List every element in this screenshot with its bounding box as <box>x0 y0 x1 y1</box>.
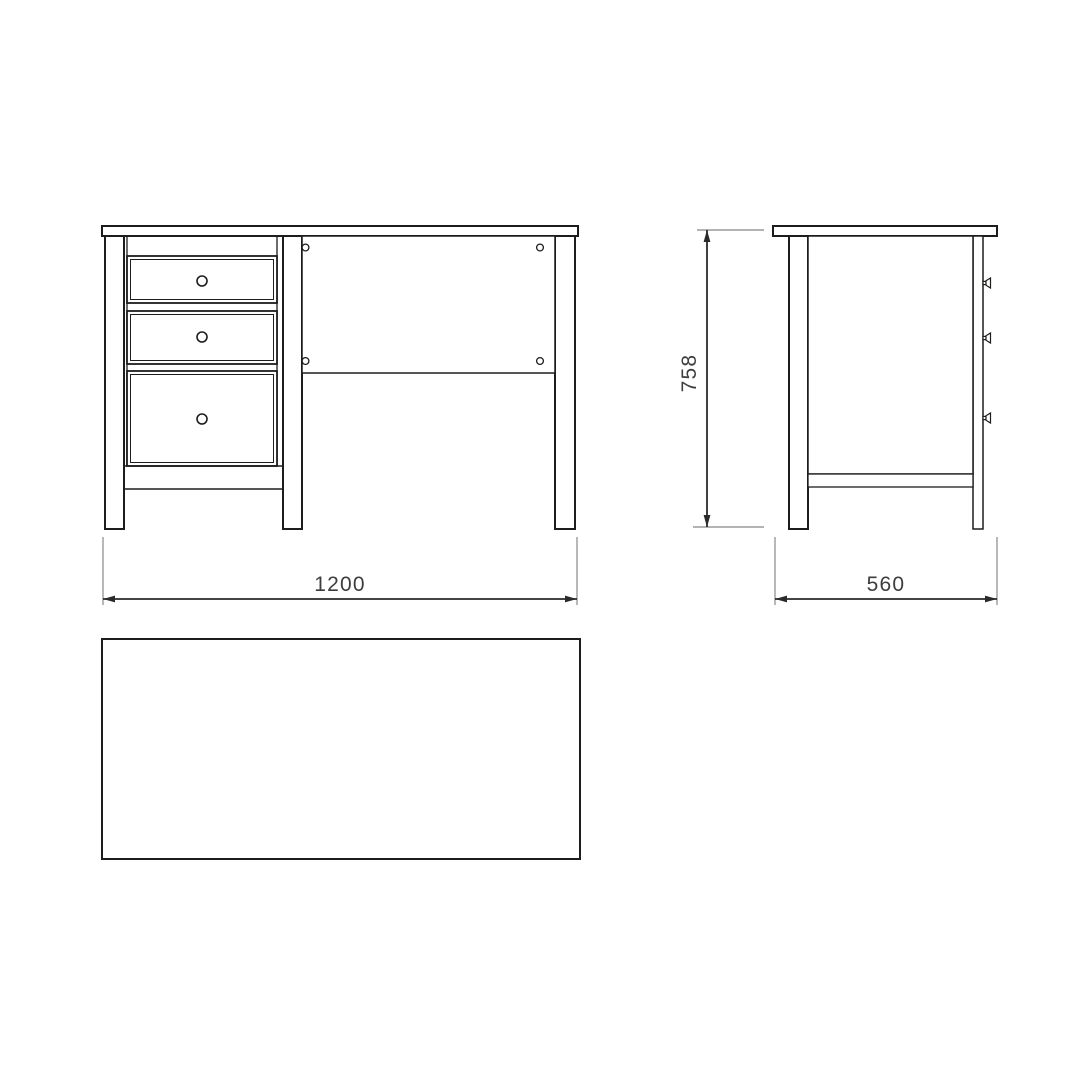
plan-desktop-outline <box>102 639 580 859</box>
arrowhead-down <box>704 515 711 527</box>
screw-hole-icon <box>537 358 544 365</box>
depth-dimension-label: 560 <box>867 573 906 596</box>
width-dimension: 1200 <box>103 537 577 605</box>
width-dimension-label: 1200 <box>314 573 366 596</box>
drawer-knob-icon <box>197 414 207 424</box>
front-bottom-rail <box>124 466 283 489</box>
screw-hole-icon <box>537 244 544 251</box>
technical-drawing-canvas: 1200 560 758 <box>0 0 1080 1080</box>
front-middle-leg <box>283 236 302 529</box>
drawer-knob-icon <box>197 276 207 286</box>
drawer-front-1 <box>127 256 277 303</box>
side-view <box>773 226 997 529</box>
arrowhead-right <box>985 596 997 603</box>
front-top-board <box>102 226 578 236</box>
depth-dimension: 560 <box>775 537 997 605</box>
front-right-leg <box>555 236 575 529</box>
front-view <box>102 226 578 529</box>
height-dimension-label: 758 <box>678 354 701 393</box>
front-left-leg <box>105 236 124 529</box>
plan-view <box>102 639 580 859</box>
screw-hole-icon <box>302 244 309 251</box>
side-front-leg <box>973 236 983 529</box>
arrowhead-left <box>775 596 787 603</box>
arrowhead-up <box>704 230 711 242</box>
drawer-knob-icon <box>197 332 207 342</box>
side-knob-icon <box>983 278 991 288</box>
side-back-leg <box>789 236 808 529</box>
side-top-board <box>773 226 997 236</box>
screw-hole-icon <box>302 358 309 365</box>
side-knob-icon <box>983 413 991 423</box>
arrowhead-right <box>565 596 577 603</box>
desk-drawing: 1200 560 758 <box>0 0 1080 1080</box>
side-panel <box>808 236 973 474</box>
height-dimension: 758 <box>678 230 764 527</box>
side-bottom-rail <box>808 474 973 487</box>
front-back-panel <box>302 236 555 373</box>
drawer-front-2 <box>127 311 277 364</box>
arrowhead-left <box>103 596 115 603</box>
drawer-front-3 <box>127 371 277 466</box>
side-knob-icon <box>983 333 991 343</box>
